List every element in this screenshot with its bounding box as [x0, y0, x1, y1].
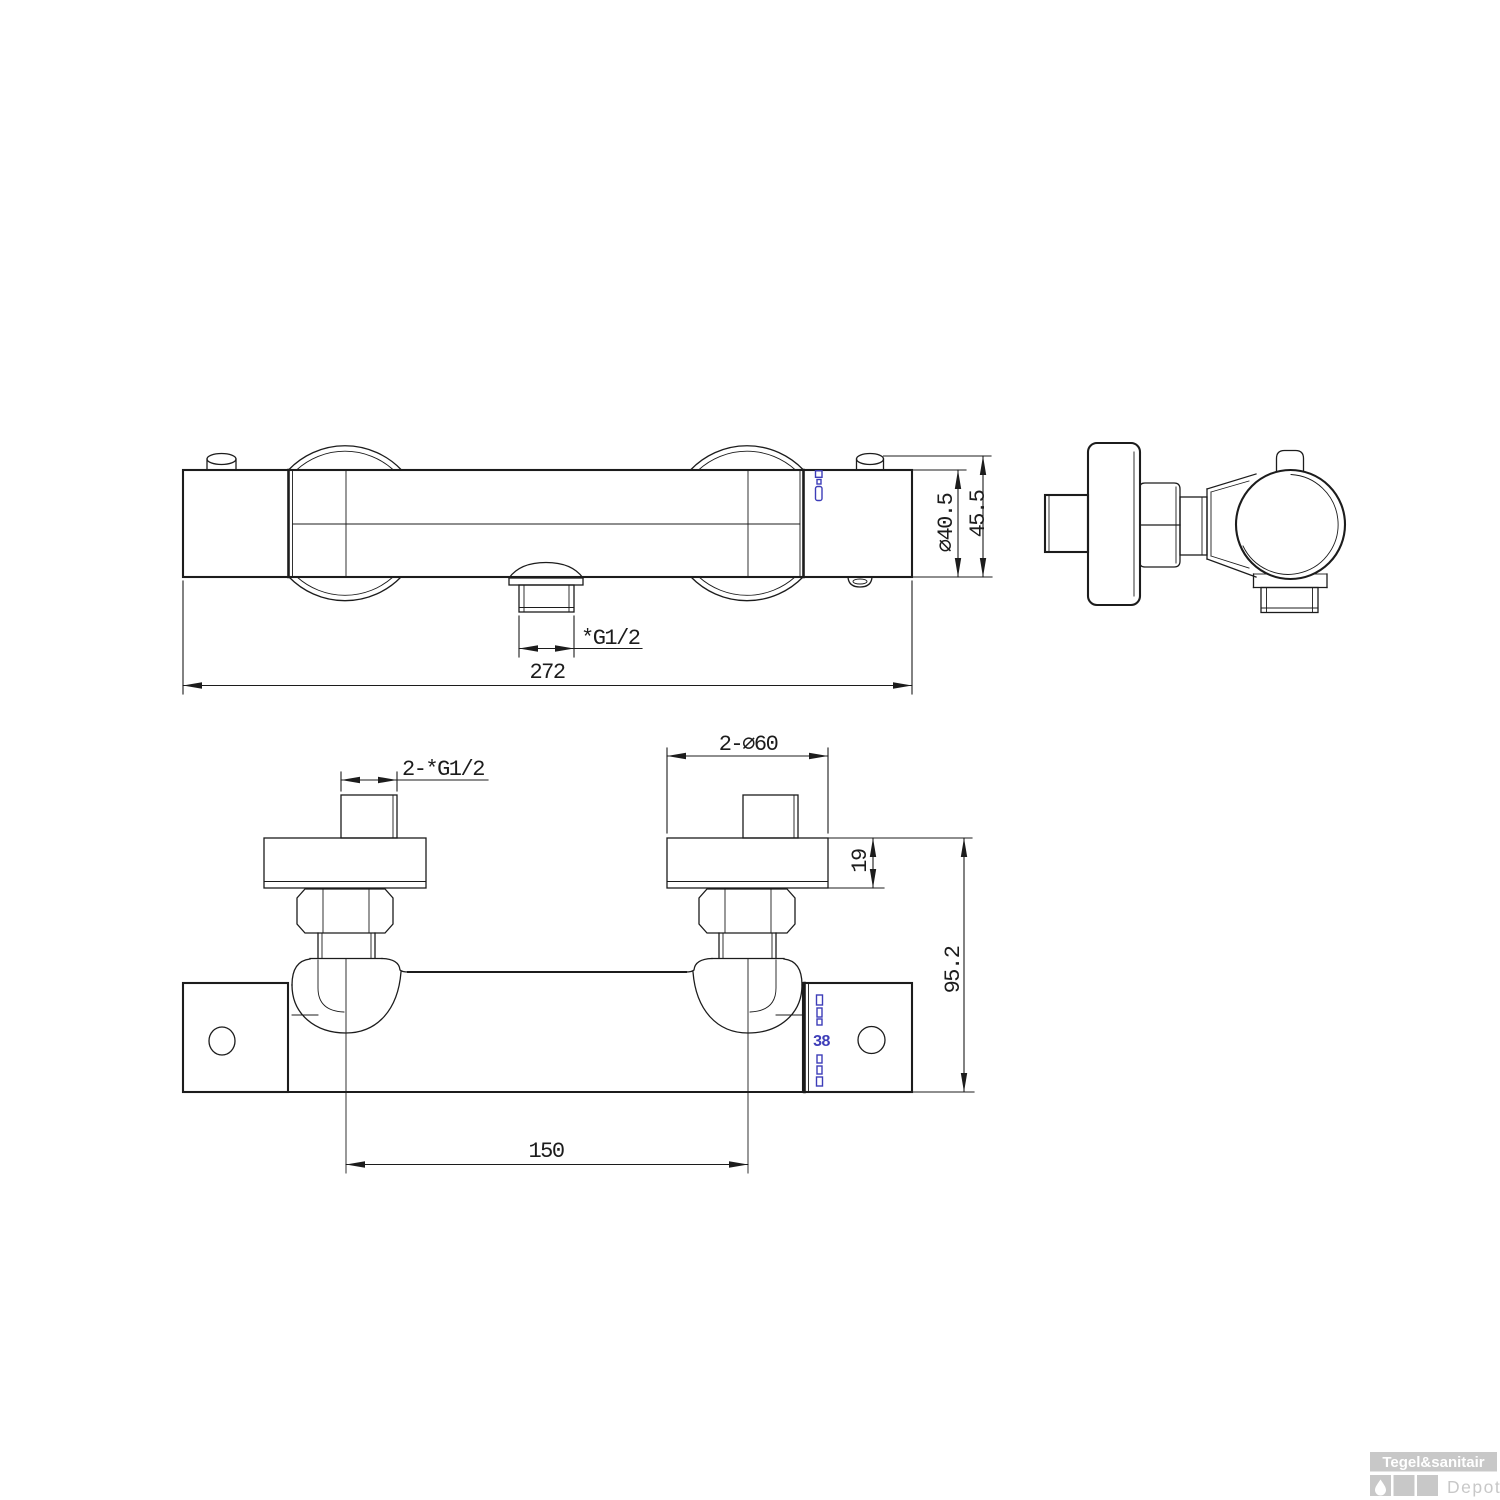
- hex-nut-side: [1140, 483, 1180, 567]
- dim-escutcheon-diameter: 2-∅60: [667, 732, 828, 833]
- wall-union-side: [1045, 495, 1088, 552]
- body-diameter-label: ∅40.5: [934, 493, 959, 552]
- escutcheon-diameter-label: 2-∅60: [719, 732, 778, 757]
- diverter-button-left: [207, 454, 236, 471]
- escutcheon-side: [1088, 443, 1140, 605]
- dim-inlet-thread: 2-*G1/2: [341, 757, 488, 791]
- left-inlet-nut: [297, 889, 393, 933]
- escutcheon-thickness-label: 19: [848, 849, 873, 873]
- body-height-label: 45.5: [966, 490, 991, 537]
- temperature-scale-top-view: 38: [813, 995, 830, 1086]
- right-inlet-escutcheon: [667, 838, 828, 888]
- temperature-scale-marks-front: [816, 471, 823, 501]
- shower-outlet-front: [509, 563, 583, 613]
- dim-inlet-spacing: 150: [346, 1139, 748, 1165]
- watermark-logo: Tegel&sanitair Depot: [1370, 1452, 1500, 1497]
- left-inlet-elbow: [292, 959, 408, 1034]
- wall-depth-label: 95.2: [941, 946, 966, 993]
- dim-outlet-thread: *G1/2: [519, 616, 642, 657]
- dim-wall-depth: 95.2: [912, 838, 974, 1092]
- handle-knob-side: [1236, 470, 1345, 579]
- logo-square-2: [1394, 1475, 1415, 1496]
- inlet-spacing-label: 150: [528, 1139, 563, 1164]
- overall-width-label: 272: [529, 660, 564, 685]
- dim-body-diameter: ∅40.5: [912, 470, 966, 577]
- left-end-cap: [183, 983, 288, 1092]
- temperature-stop-label: 38: [813, 1033, 830, 1050]
- front-view: *G1/2 272 ∅40.5 45.5: [183, 446, 992, 694]
- logo-square-3: [1417, 1475, 1438, 1496]
- technical-drawing-page: *G1/2 272 ∅40.5 45.5: [0, 0, 1500, 1500]
- side-view: [1045, 443, 1345, 613]
- outlet-base-side: [1254, 574, 1328, 588]
- shower-mixer-dimension-drawing: *G1/2 272 ∅40.5 45.5: [0, 0, 1500, 1500]
- right-cap-hole: [858, 1027, 885, 1054]
- left-inlet-escutcheon: [264, 838, 426, 888]
- dim-overall-width: 272: [183, 581, 912, 694]
- dim-escutcheon-thickness: 19: [828, 838, 972, 888]
- brand-name: Tegel&sanitair: [1382, 1454, 1484, 1471]
- button-side: [1277, 451, 1304, 472]
- left-cap-hole: [209, 1027, 235, 1055]
- nut-connector-side: [1180, 497, 1207, 555]
- inlet-thread-label: 2-*G1/2: [402, 757, 484, 782]
- outlet-thread-side: [1261, 588, 1318, 613]
- right-inlet-nut: [699, 889, 795, 933]
- top-view: 38: [183, 732, 974, 1173]
- outlet-thread-label: *G1/2: [581, 626, 640, 651]
- left-inlet-nipple: [341, 795, 397, 838]
- right-inlet-nipple: [743, 795, 798, 838]
- right-inlet-elbow: [686, 959, 802, 1034]
- diverter-button-right: [857, 454, 884, 471]
- stop-tab: [848, 578, 872, 588]
- sub-brand-name: Depot: [1447, 1477, 1500, 1497]
